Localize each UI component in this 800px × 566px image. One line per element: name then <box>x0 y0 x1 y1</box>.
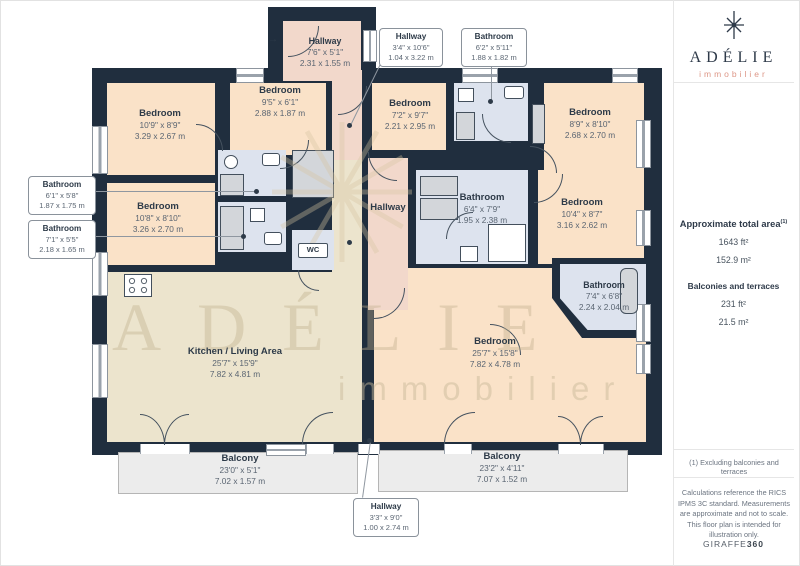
sink-icon <box>460 246 478 262</box>
window <box>612 68 638 83</box>
room-label-bedroom-4: Bedroom 7'2" x 9'7" 2.21 x 2.95 m <box>363 98 457 132</box>
giraffe360-credit: GIRAFFE360 <box>673 539 794 549</box>
brand-logo: ADÉLIE immobilier <box>673 10 794 79</box>
window <box>636 210 651 246</box>
window <box>92 344 108 398</box>
callout-bathroom-top: Bathroom 6'2" x 5'11" 1.88 x 1.82 m <box>461 28 527 67</box>
sidebar-divider <box>674 477 794 478</box>
room-label-bedroom-7: Bedroom 25'7" x 15'8" 7.82 x 4.78 m <box>428 336 562 370</box>
brand-star-icon <box>721 10 747 40</box>
floorplan-page: ADÉLIE immobilier <box>0 0 800 566</box>
leader-dot <box>347 123 352 128</box>
window <box>236 68 264 83</box>
leader-dot <box>488 99 493 104</box>
room-label-balcony-right: Balcony 23'2" x 4'11" 7.07 x 1.52 m <box>422 451 582 485</box>
window <box>363 30 377 62</box>
room-label-bedroom-3: Bedroom 10'8" x 8'10" 3.26 x 2.70 m <box>106 201 210 235</box>
total-area-ft: 1643 ft² <box>673 237 794 247</box>
room-label-bathroom-br: Bathroom 7'4" x 6'8" 2.24 x 2.04 m <box>556 280 652 313</box>
wc-label: WC <box>298 243 328 258</box>
window <box>92 126 108 174</box>
junction-dot <box>347 240 352 245</box>
leader-dot <box>241 234 246 239</box>
brand-tagline: immobilier <box>673 69 794 79</box>
footnote-marker: (1) <box>781 219 788 225</box>
room-label-balcony-left: Balcony 23'0" x 5'1" 7.02 x 1.57 m <box>160 453 320 487</box>
balconies-title: Balconies and terraces <box>673 281 794 291</box>
room-label-bedroom-5: Bedroom 8'9" x 8'10" 2.68 x 2.70 m <box>537 107 643 141</box>
sidebar-divider <box>674 449 794 450</box>
room-label-hallway-top: Hallway 7'6" x 5'1" 2.31 x 1.55 m <box>287 36 363 69</box>
callout-hallway-top: Hallway 3'4" x 10'6" 1.04 x 3.22 m <box>379 28 443 67</box>
sink-icon <box>224 155 238 169</box>
sidebar-divider <box>674 82 794 83</box>
balconies-m: 21.5 m² <box>673 317 794 327</box>
area-footnote: (1) Excluding balconies and terraces <box>675 458 793 476</box>
room-label-hallway-center: Hallway <box>352 202 424 214</box>
callout-hallway-bottom: Hallway 3'3" x 9'0" 1.00 x 2.74 m <box>353 498 419 537</box>
callout-bathroom-2: Bathroom 7'1" x 5'5" 2.18 x 1.65 m <box>28 220 96 259</box>
callout-bathroom-1: Bathroom 6'1" x 5'8" 1.87 x 1.75 m <box>28 176 96 215</box>
shower-tray-fixture <box>488 224 526 262</box>
toilet-icon <box>504 86 524 99</box>
room-label-bedroom-1: Bedroom 10'9" x 8'9" 3.29 x 2.67 m <box>108 108 212 142</box>
leader-line <box>491 63 492 101</box>
room-label-kitchen-living: Kitchen / Living Area 25'7" x 15'9" 7.82… <box>153 346 317 380</box>
total-area-title: Approximate total area(1) <box>673 219 794 229</box>
shower-fixture <box>220 206 244 250</box>
room-label-bedroom-2: Bedroom 9'5" x 6'1" 2.88 x 1.87 m <box>230 85 330 119</box>
window <box>92 252 108 296</box>
total-area-m: 152.9 m² <box>673 255 794 265</box>
watermark-star-icon <box>262 112 422 272</box>
area-summary: Approximate total area(1) 1643 ft² 152.9… <box>673 219 794 327</box>
shower-fixture <box>456 112 475 140</box>
shower-tray-fixture <box>220 174 244 196</box>
brand-name: ADÉLIE <box>673 49 794 67</box>
leader-dot <box>367 438 372 443</box>
sink-icon <box>458 88 474 102</box>
watermark-tagline-text: immobilier <box>338 370 628 408</box>
leader-line <box>92 236 243 237</box>
leader-line <box>92 191 256 192</box>
disclaimer-text: Calculations reference the RICS IPMS 3C … <box>678 488 790 541</box>
balconies-ft: 231 ft² <box>673 299 794 309</box>
window <box>636 344 651 374</box>
room-label-bedroom-6: Bedroom 10'4" x 8'7" 3.16 x 2.62 m <box>528 197 636 231</box>
window <box>462 68 498 83</box>
leader-dot <box>254 189 259 194</box>
room-label-bathroom-center: Bathroom 6'4" x 7'9" 1.95 x 2.38 m <box>430 192 534 226</box>
entry-arrow-icon: → <box>266 33 280 46</box>
